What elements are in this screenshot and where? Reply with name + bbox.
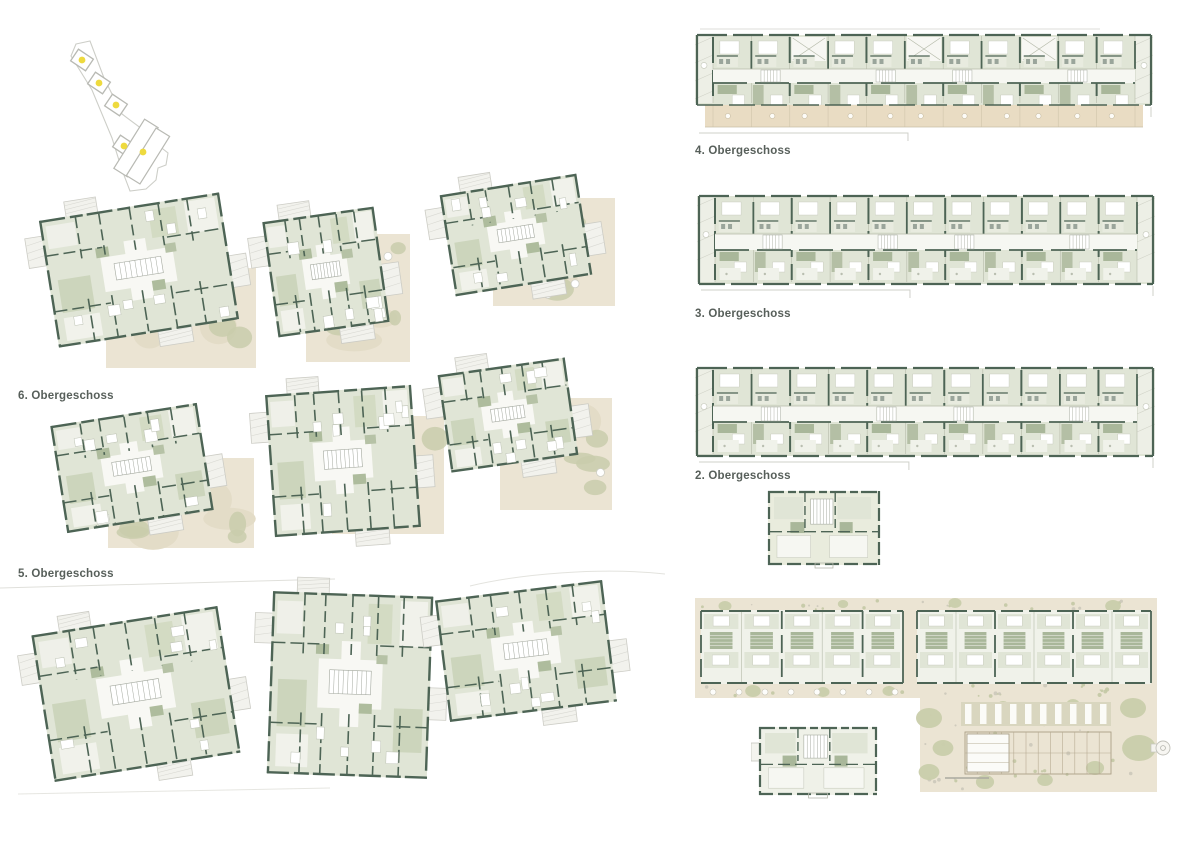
tower-floor-plan-t3-6og bbox=[411, 148, 651, 342]
tower-floor-plan-t3-5og bbox=[408, 330, 648, 546]
house-plan-2og-house bbox=[760, 487, 886, 571]
bar-floor-plan-bar-4og bbox=[695, 33, 1153, 145]
floor-label-6og: 6. Obergeschoss bbox=[18, 390, 114, 402]
floor-label-4og: 4. Obergeschoss bbox=[695, 145, 791, 157]
floor-label-5og: 5. Obergeschoss bbox=[18, 568, 114, 580]
bar-floor-plan-bar-3og bbox=[697, 194, 1155, 302]
ground-floor-site-plan bbox=[693, 596, 1171, 802]
floor-label-3og: 3. Obergeschoss bbox=[695, 308, 791, 320]
bar-floor-plan-bar-2og bbox=[695, 366, 1155, 474]
plans-layer bbox=[0, 0, 1200, 845]
plan-sheet: 6. Obergeschoss 5. Obergeschoss 4. Oberg… bbox=[0, 0, 1200, 845]
tower-floor-plan-t3-low bbox=[406, 554, 646, 748]
tower-floor-plan-t1-low bbox=[6, 584, 266, 804]
floor-label-2og: 2. Obergeschoss bbox=[695, 470, 791, 482]
